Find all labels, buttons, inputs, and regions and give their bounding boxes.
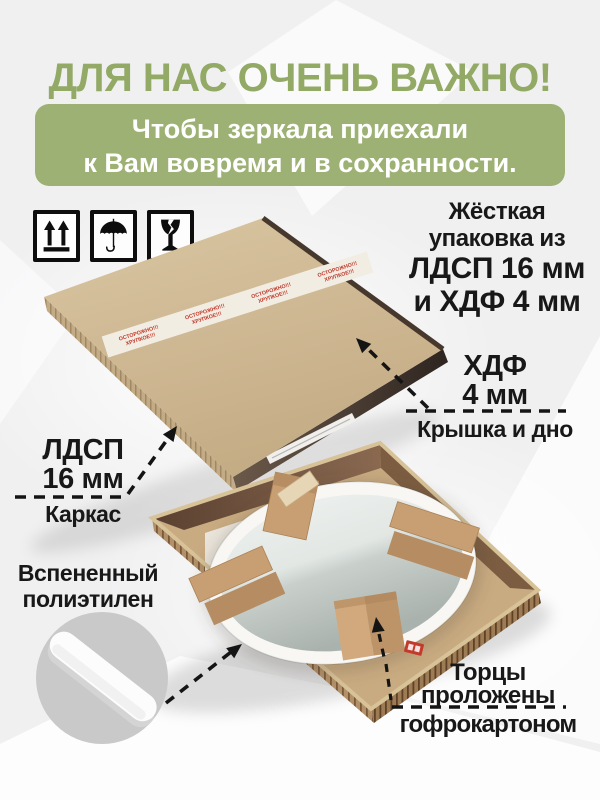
ldsp-line-2: 16 мм bbox=[8, 465, 158, 494]
ldsp-callout-sub: Каркас bbox=[8, 501, 158, 528]
hdf-callout: ХДФ 4 мм bbox=[420, 352, 570, 410]
hdf-callout-sub: Крышка и дно bbox=[413, 416, 577, 443]
ldsp-line-1: ЛДСП bbox=[8, 436, 158, 465]
foam-line-1: Вспененный bbox=[4, 560, 172, 586]
edges-callout: Торцы проложены bbox=[398, 661, 578, 707]
cardboard-tab-bottom bbox=[334, 591, 406, 660]
foam-sample-photo bbox=[36, 612, 168, 744]
hdf-line-1: ХДФ bbox=[420, 352, 570, 381]
edges-line-1: Торцы bbox=[398, 661, 578, 684]
foam-line-2: полиэтилен bbox=[4, 586, 172, 612]
packaging-line-1: Жёсткая bbox=[402, 198, 592, 225]
infographic-canvas: ДЛЯ НАС ОЧЕНЬ ВАЖНО! Чтобы зеркала приех… bbox=[0, 0, 600, 800]
edges-callout-sub: гофрокартоном bbox=[398, 711, 578, 739]
hdf-line-2: 4 мм bbox=[420, 381, 570, 410]
packaging-line-3: ЛДСП 16 мм bbox=[402, 252, 592, 285]
edges-line-2: проложены bbox=[398, 684, 578, 707]
ldsp-callout: ЛДСП 16 мм bbox=[8, 436, 158, 494]
packaging-line-2: упаковка из bbox=[402, 225, 592, 252]
foam-callout: Вспененный полиэтилен bbox=[4, 560, 172, 612]
packaging-line-4: и ХДФ 4 мм bbox=[402, 285, 592, 318]
packaging-callout: Жёсткая упаковка из ЛДСП 16 мм и ХДФ 4 м… bbox=[402, 198, 592, 318]
